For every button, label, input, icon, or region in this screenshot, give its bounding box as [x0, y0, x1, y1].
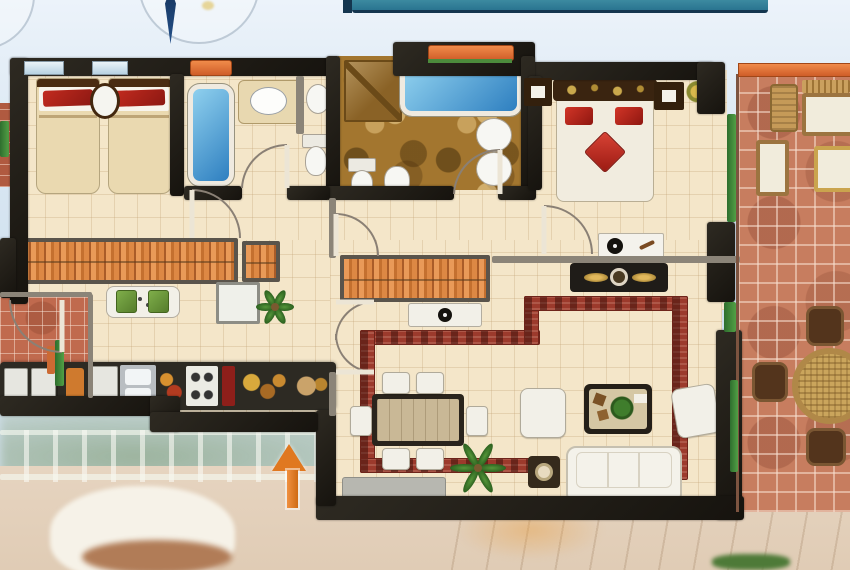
entrance-arrow-icon: [272, 444, 306, 471]
door-arc-mainbath: [454, 150, 500, 194]
door-arc-bath2: [242, 145, 287, 188]
door-arc-twin-bedroom: [192, 190, 240, 238]
door-arc-utility: [10, 300, 62, 352]
entrance-arrow-shaft: [287, 470, 298, 508]
door-arc-double-bottom: [336, 334, 374, 372]
door-arc-double-top: [336, 302, 374, 340]
floor-plan-composite: [0, 0, 850, 570]
door-arc-master: [544, 206, 592, 254]
door-arc-hall: [336, 214, 378, 256]
door-arcs-overlay: [0, 0, 850, 570]
